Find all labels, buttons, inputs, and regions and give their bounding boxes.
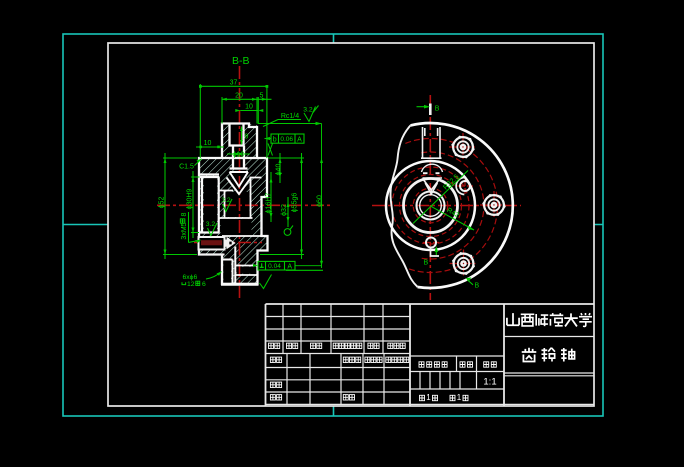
svg-text:8: 8 [181,212,188,216]
svg-text:ϕ60: ϕ60 [317,195,324,207]
svg-text:ϕ32: ϕ32 [281,204,288,216]
svg-text:1: 1 [457,393,462,402]
svg-text:ϕ55g6: ϕ55g6 [292,193,299,213]
svg-text:37: 37 [230,80,238,87]
svg-text:C1.5: C1.5 [179,164,194,171]
svg-text:10: 10 [245,104,253,111]
svg-text:3.2: 3.2 [206,221,216,228]
svg-text:9: 9 [245,134,249,141]
svg-text:B: B [475,283,480,290]
svg-text:B: B [424,259,429,266]
svg-text:ϕ52: ϕ52 [159,197,166,209]
svg-text:3.2: 3.2 [303,107,313,114]
svg-text:10: 10 [204,140,212,147]
svg-text:A: A [297,136,302,143]
svg-text:12: 12 [187,281,195,288]
svg-text:ϕ40: ϕ40 [275,164,282,176]
svg-text:1: 1 [426,393,431,402]
svg-text:Rc1/4: Rc1/4 [281,113,299,120]
svg-text:A: A [287,263,292,270]
svg-text:5: 5 [260,93,264,100]
svg-text:B-B: B-B [232,55,250,67]
svg-text:ϕ30H9: ϕ30H9 [187,189,194,210]
svg-text:6: 6 [202,281,206,288]
svg-text:ϕ10: ϕ10 [233,152,245,159]
svg-text:ϕ16H7: ϕ16H7 [266,193,273,214]
svg-text:6xϕ6: 6xϕ6 [183,274,198,281]
svg-text:b: b [273,136,277,143]
svg-text:20: 20 [235,93,243,100]
svg-text:1:1: 1:1 [483,376,496,387]
svg-text:0.04: 0.04 [268,263,281,270]
svg-text:3xM5: 3xM5 [181,222,188,239]
svg-text:B: B [435,106,440,113]
svg-text:0.06: 0.06 [280,136,293,143]
